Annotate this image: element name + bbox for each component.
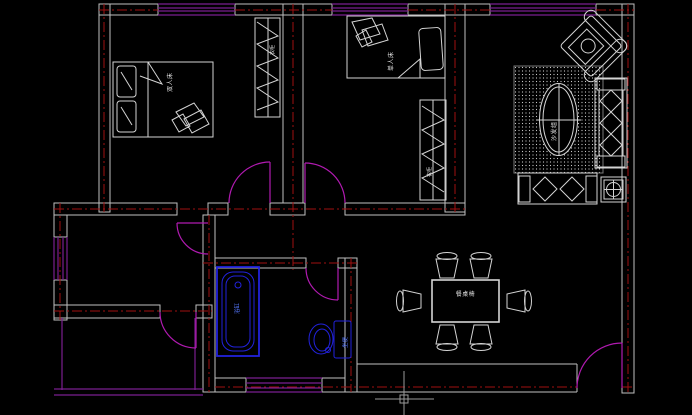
bed-double[interactable]: 双人床	[113, 62, 213, 137]
sheet-fold	[140, 62, 162, 84]
dining-chair-bottom1	[436, 325, 458, 351]
toilet-bowl	[309, 324, 333, 354]
chair-pillow	[578, 36, 598, 56]
dining-label: 餐桌椅	[456, 290, 476, 298]
door-entry[interactable]	[577, 343, 622, 388]
bed-label: 双人床	[166, 72, 174, 92]
crosshair-cursor	[375, 371, 434, 415]
pillow	[419, 27, 444, 70]
door-bedroom2[interactable]	[305, 163, 345, 203]
lamp-cross	[604, 180, 623, 199]
bed-frame	[113, 62, 213, 137]
cad-canvas[interactable]: 双人床 衣柜 单人床 衣柜 沙发组	[0, 0, 692, 415]
sofa-armrest	[519, 176, 530, 202]
windows[interactable]	[54, 4, 596, 395]
dining-bottom-wall	[357, 364, 577, 392]
dining-chair-bottom2	[470, 325, 492, 351]
dining-table	[432, 280, 499, 322]
bath-bottom-wall-b	[322, 378, 345, 392]
window-bedroom1	[158, 4, 235, 15]
bathtub-label: 浴缸	[233, 302, 241, 314]
blanket-crumple	[172, 103, 209, 133]
door-balcony[interactable]	[160, 312, 196, 348]
closet-bedroom1[interactable]: 衣柜	[255, 18, 280, 117]
bath-bottom-wall-a	[215, 378, 246, 392]
door-bedroom1[interactable]	[229, 162, 270, 203]
bathtub[interactable]: 浴缸	[217, 267, 259, 356]
doors[interactable]	[160, 162, 622, 388]
sheet-fold	[398, 59, 420, 78]
window-bedroom2	[332, 4, 408, 15]
bed-label: 单人床	[387, 51, 395, 71]
dining-chair-top2	[470, 253, 492, 279]
sofa-cushions	[533, 177, 584, 201]
window-bathroom	[246, 378, 322, 392]
tub-drain	[235, 282, 241, 288]
dining-chair-right	[507, 290, 532, 312]
dining-chair-top1	[436, 253, 458, 279]
door-swing-arc	[305, 163, 345, 203]
closet-label: 衣柜	[269, 45, 276, 55]
sofa-armrest	[586, 176, 597, 202]
sofa-set-label: 沙发组	[550, 121, 558, 141]
pillow-crease	[121, 72, 132, 125]
toilet-label: 坐便	[341, 336, 349, 348]
window-living	[490, 4, 596, 15]
door-swing-arc	[229, 162, 270, 203]
door-swing-arc	[306, 268, 338, 300]
sofa-bottom[interactable]	[518, 173, 597, 204]
dining-set[interactable]: 餐桌椅	[397, 253, 532, 351]
dining-chair-left	[397, 290, 422, 312]
door-swing-arc	[160, 312, 196, 348]
closet-bedroom2[interactable]: 衣柜	[420, 100, 446, 200]
door-bathroom[interactable]	[306, 268, 338, 300]
bed-single[interactable]: 单人床	[347, 16, 445, 78]
blanket-crumple	[352, 18, 388, 47]
closet-label: 衣柜	[426, 167, 433, 177]
balcony-rail	[54, 318, 203, 395]
floorplan-drawing[interactable]: 双人床 衣柜 单人床 衣柜 沙发组	[0, 0, 692, 415]
door-swing-arc	[577, 343, 622, 388]
